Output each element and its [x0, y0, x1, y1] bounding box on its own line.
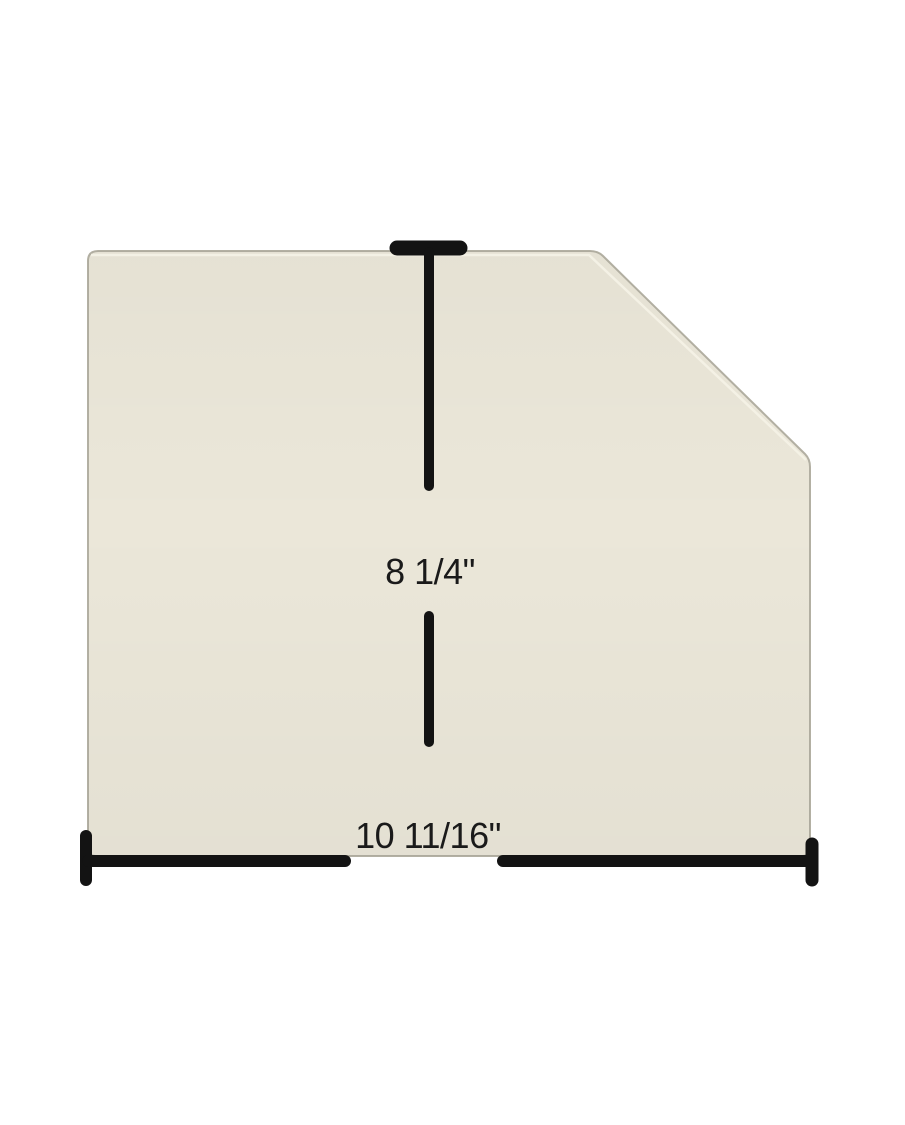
- width-dimension-label: 10 11/16": [355, 815, 501, 856]
- height-dimension-label: 8 1/4": [385, 551, 475, 592]
- product-image-canvas: 8 1/4" 10 11/16": [0, 0, 905, 1125]
- glass-dimension-diagram: 8 1/4" 10 11/16": [0, 0, 905, 1125]
